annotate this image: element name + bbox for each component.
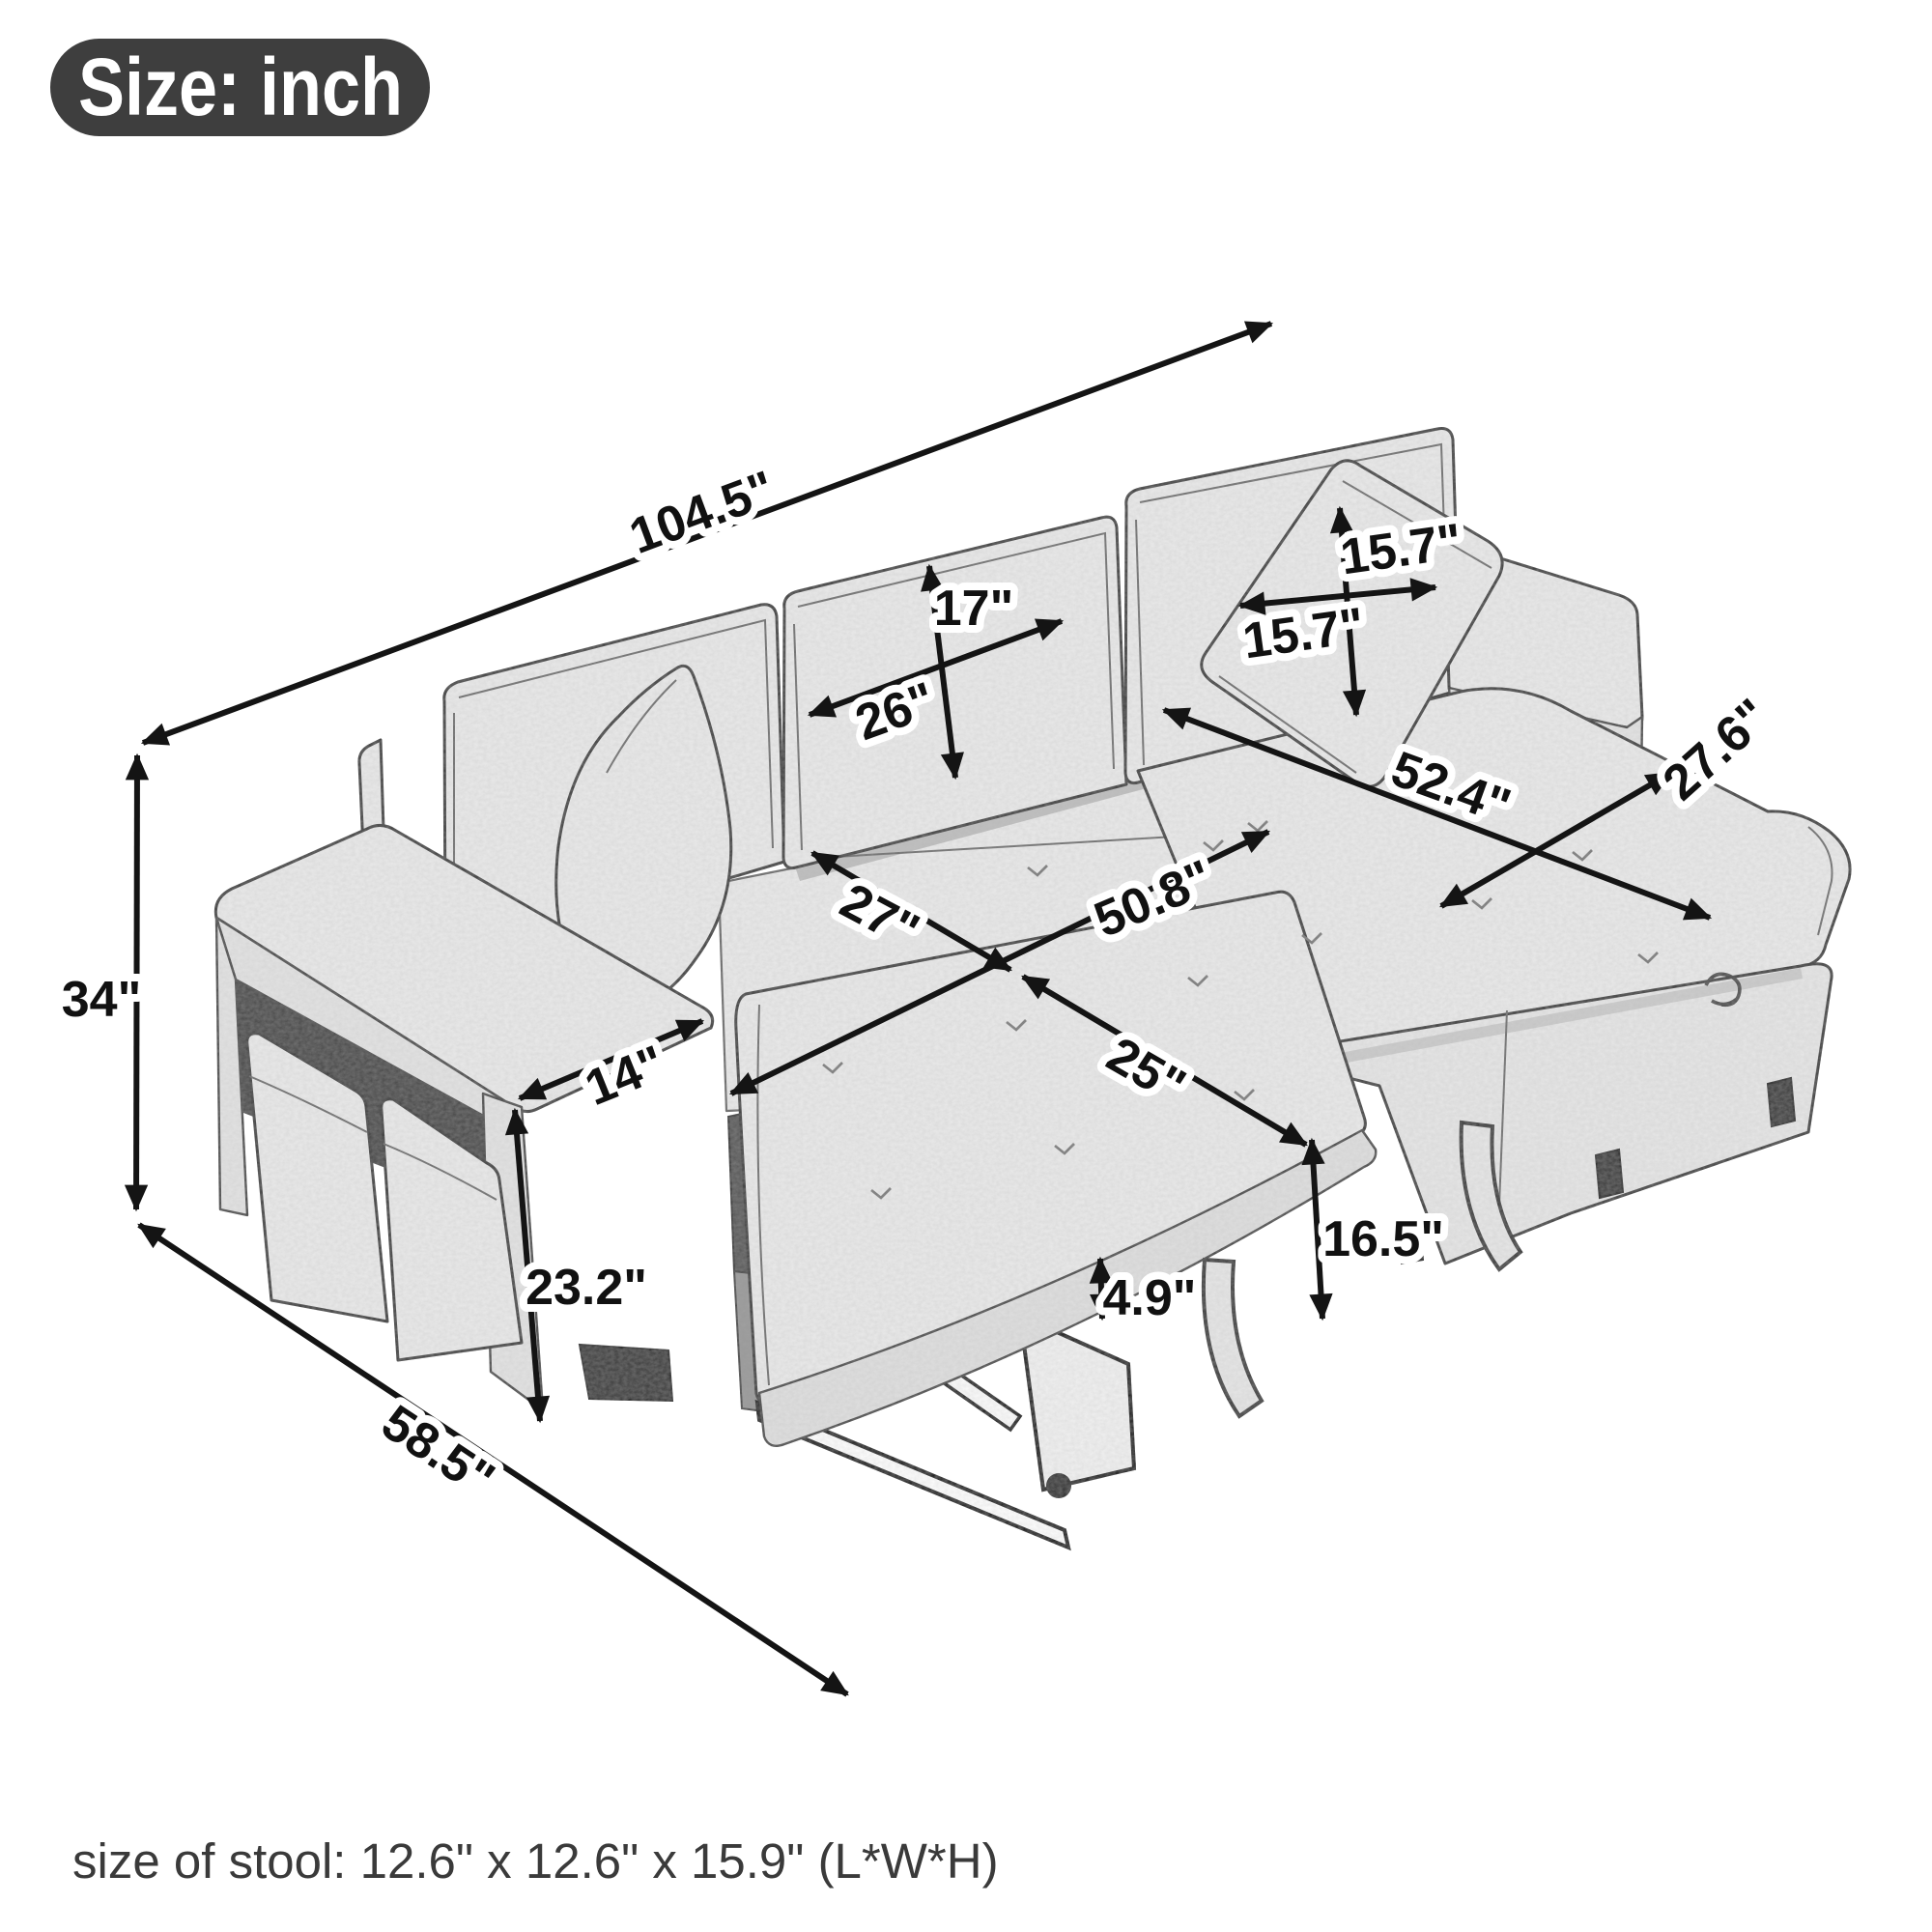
svg-text:17": 17" (934, 581, 1014, 637)
svg-text:58.5": 58.5" (372, 1395, 504, 1509)
svg-text:23.2": 23.2" (526, 1260, 647, 1316)
svg-text:4.9": 4.9" (1103, 1270, 1197, 1326)
svg-text:Size: inch: Size: inch (78, 42, 403, 132)
svg-text:size of stool: 12.6" x 12.6" x: size of stool: 12.6" x 12.6" x 15.9" (L*… (72, 1833, 999, 1889)
svg-text:16.5": 16.5" (1322, 1211, 1444, 1267)
svg-text:104.5": 104.5" (622, 461, 781, 565)
svg-text:34": 34" (62, 972, 142, 1028)
